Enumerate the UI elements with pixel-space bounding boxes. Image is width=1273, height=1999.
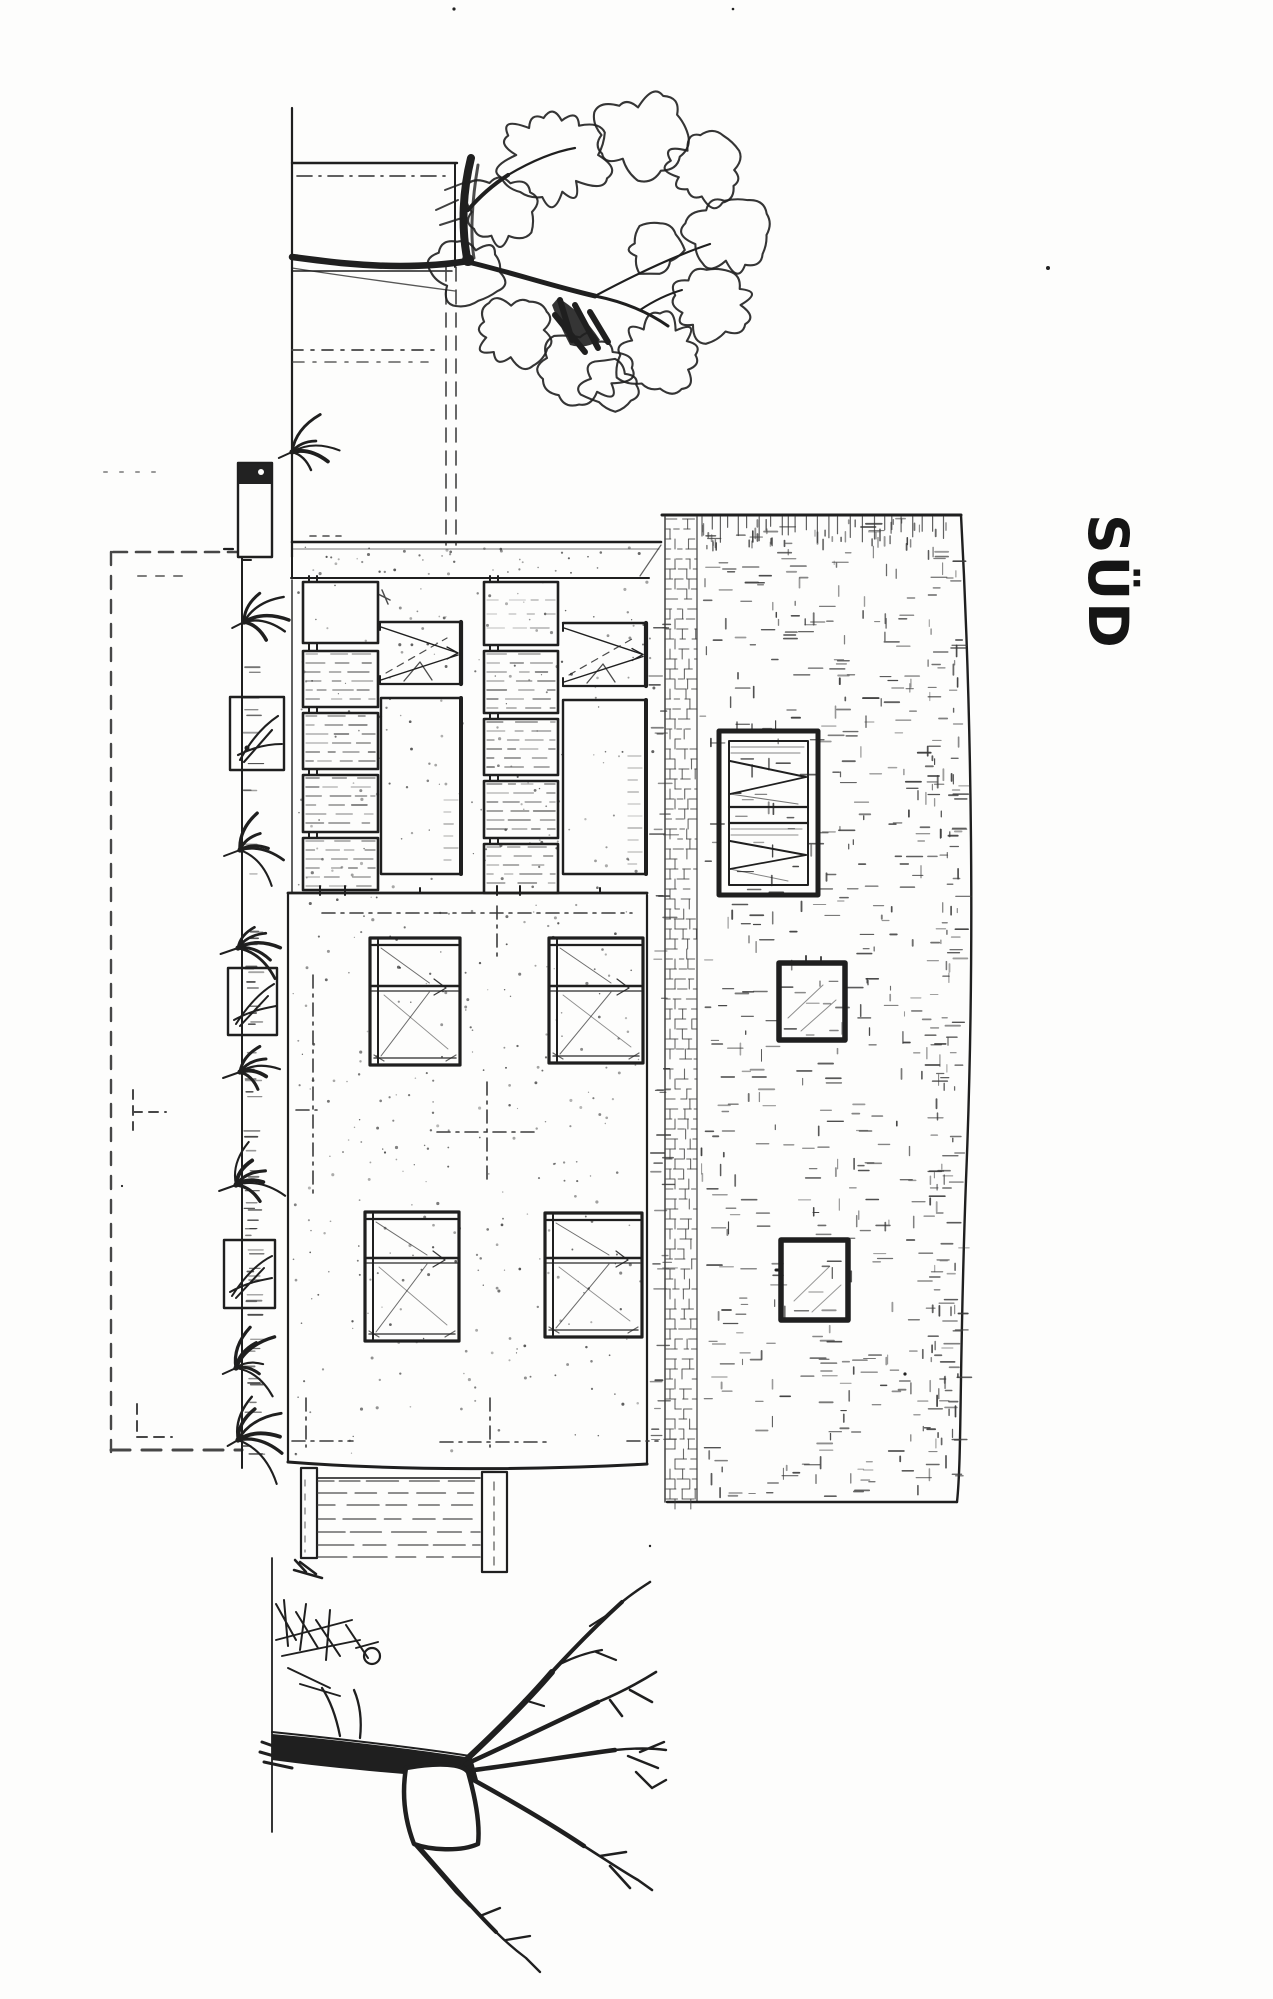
facade-window-top-right xyxy=(549,938,643,1063)
upper-recessed-panel-left xyxy=(381,698,461,874)
planter-box xyxy=(230,697,284,770)
garden-wall xyxy=(219,415,339,1484)
brick-field-texture xyxy=(700,550,971,1498)
paper-specks xyxy=(121,7,1050,1547)
elevation-label: SÜD xyxy=(1076,514,1140,650)
upper-floor xyxy=(292,576,655,895)
brick-window-upper xyxy=(779,956,845,1040)
deck-boards xyxy=(318,1481,480,1557)
main-facade xyxy=(288,893,658,1469)
facade-window-bottom-left xyxy=(365,1212,459,1341)
upper-casement-right xyxy=(563,623,646,686)
louver-stack-left xyxy=(303,576,378,890)
tree-top xyxy=(292,91,770,411)
trunk-fork-gap xyxy=(404,1765,478,1850)
elevation-sheet: SÜD xyxy=(0,0,1273,1999)
neighbor-outline-dashed xyxy=(104,472,242,1452)
chimney-box xyxy=(224,463,272,560)
tree-top-foliage xyxy=(428,91,770,411)
cornice-band xyxy=(291,536,661,578)
louver-stack-mid xyxy=(484,576,558,893)
elevation-drawing: SÜD xyxy=(0,0,1273,1999)
entry-deck xyxy=(294,1468,507,1578)
brick-corner-band xyxy=(666,519,697,1509)
roof-terrace-outline xyxy=(292,108,457,557)
facade-window-bottom-right xyxy=(545,1213,642,1337)
shrub-strokes xyxy=(276,1600,368,1660)
brick-wing xyxy=(649,515,971,1509)
upper-recessed-panel-right xyxy=(563,700,646,874)
brick-window-lower xyxy=(776,1240,848,1320)
tree-bottom xyxy=(260,1558,666,1972)
upper-casement-left xyxy=(380,622,461,684)
facade-window-top-left xyxy=(370,938,460,1065)
